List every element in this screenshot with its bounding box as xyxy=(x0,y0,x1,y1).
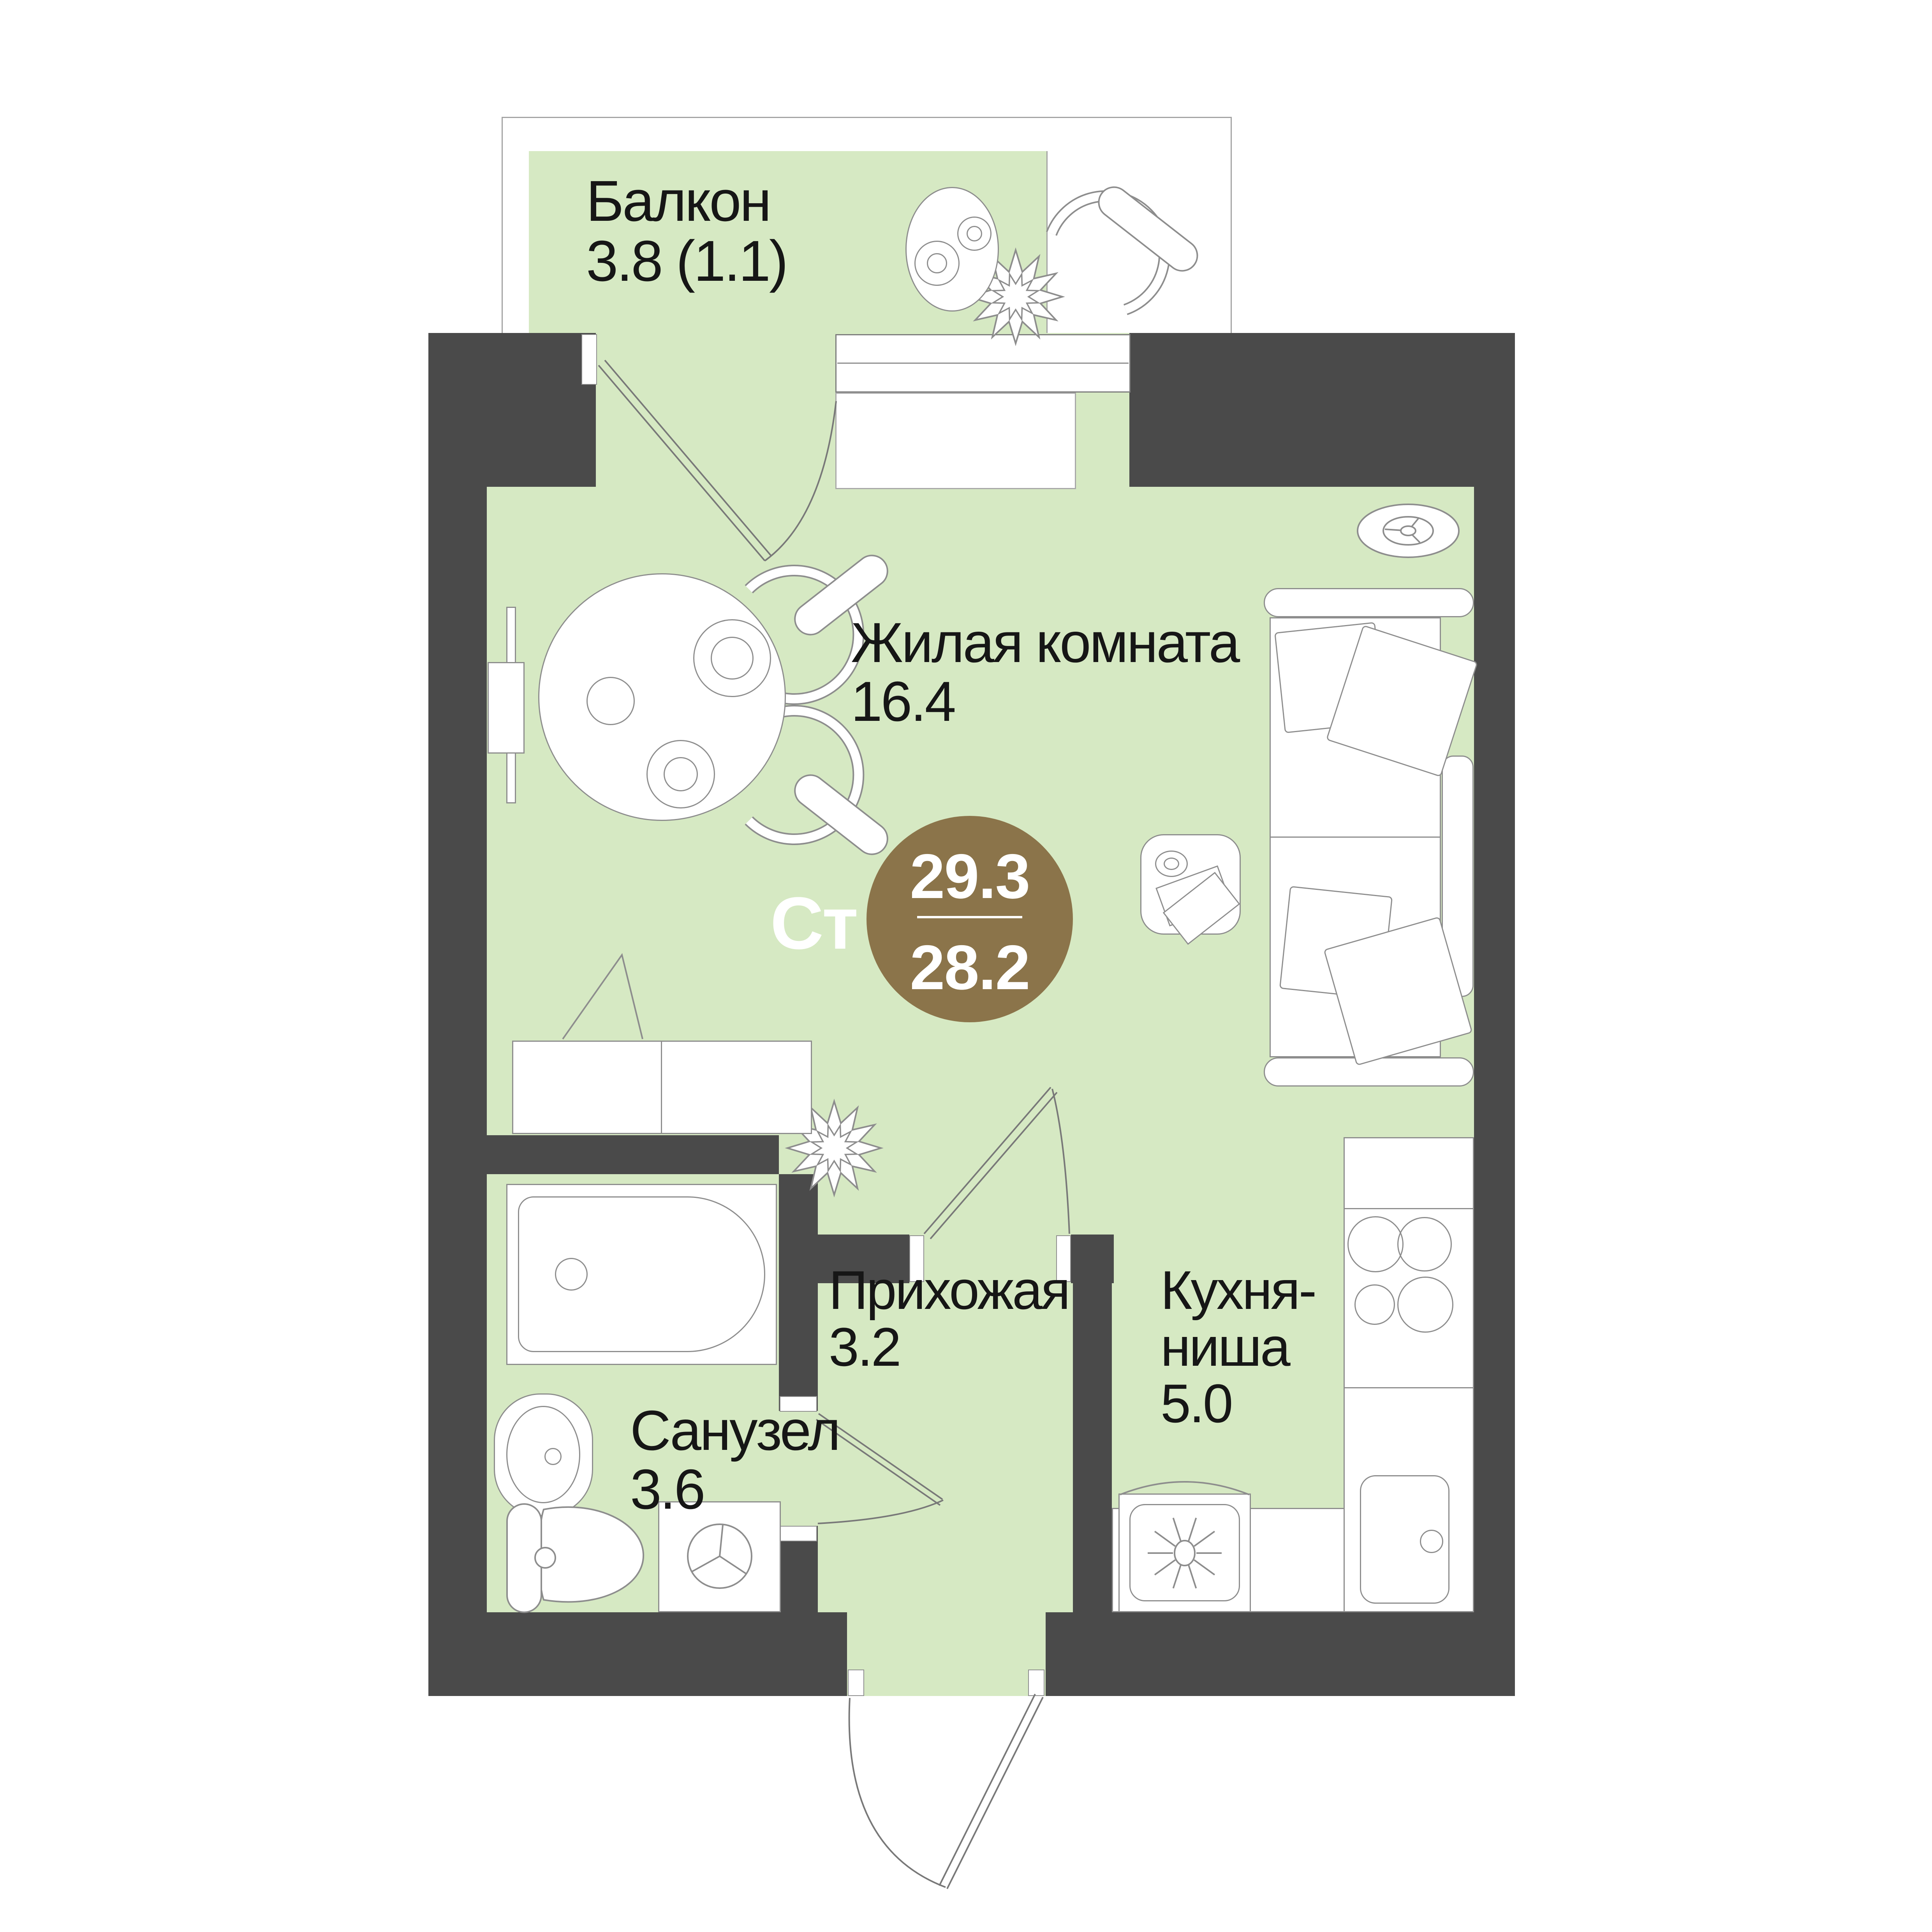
kitchen-area: 5.0 xyxy=(1161,1375,1315,1432)
balcony-name: Балкон xyxy=(586,171,787,231)
fridge-door-arc xyxy=(1120,1482,1249,1495)
living-label: Жилая комната 16.4 xyxy=(851,613,1238,731)
area-living: 28.2 xyxy=(866,932,1073,1004)
area-total: 29.3 xyxy=(866,840,1073,913)
balcony-area: 3.8 (1.1) xyxy=(586,231,787,291)
wardrobe-door-lines xyxy=(563,955,643,1039)
hall-area: 3.2 xyxy=(829,1319,1069,1375)
living-name: Жилая комната xyxy=(851,613,1238,672)
bath-name: Санузел xyxy=(630,1401,839,1460)
balcony-label: Балкон 3.8 (1.1) xyxy=(586,171,787,291)
floor-plan: Балкон 3.8 (1.1) Жилая комната 16.4 Прих… xyxy=(0,0,1932,1932)
apartment-type-code: Ст xyxy=(756,881,857,966)
kitchen-name-line1: Кухня- xyxy=(1161,1262,1315,1319)
entrance-door xyxy=(849,1694,1043,1889)
bath-label: Санузел 3.6 xyxy=(630,1401,839,1519)
balcony-door xyxy=(599,360,836,561)
hall-door xyxy=(924,1087,1069,1239)
kitchen-label: Кухня- ниша 5.0 xyxy=(1161,1262,1315,1432)
living-area: 16.4 xyxy=(851,672,1238,731)
badge-divider xyxy=(917,916,1022,918)
toilet xyxy=(507,1504,643,1612)
ceiling-fan-icon xyxy=(1358,504,1459,557)
kitchen-name-line2: ниша xyxy=(1161,1319,1315,1375)
snowflake-icon xyxy=(1148,1518,1222,1589)
hall-label: Прихожая 3.2 xyxy=(829,1262,1069,1375)
hall-name: Прихожая xyxy=(829,1262,1069,1319)
washer-drum-icon xyxy=(688,1524,752,1588)
bath-area: 3.6 xyxy=(630,1460,839,1519)
